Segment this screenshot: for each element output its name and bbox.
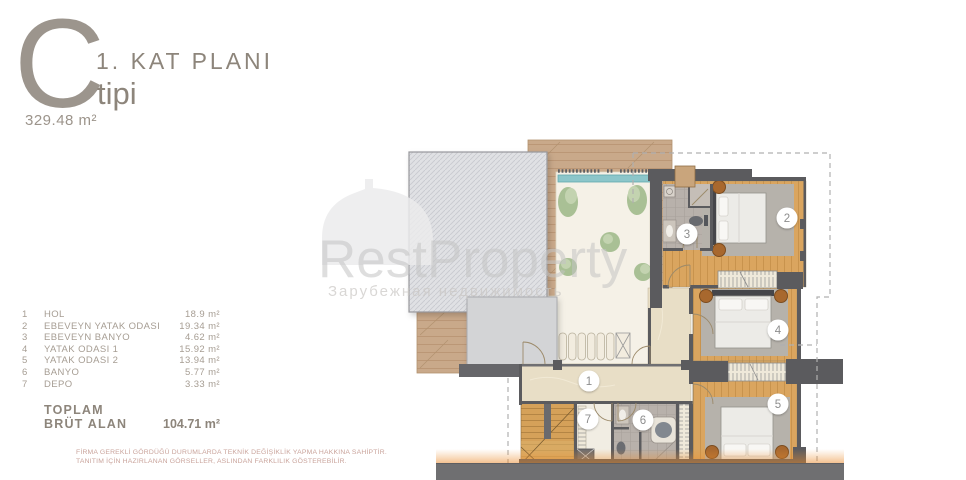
room-name: DEPO — [44, 379, 185, 391]
plan-title: 1. KAT PLANI — [96, 48, 273, 75]
glow — [436, 449, 844, 464]
total-value: 104.71 m² — [163, 417, 220, 431]
plan-type-label: tipi — [97, 76, 137, 112]
floor-hall — [521, 364, 691, 403]
room-number: 5 — [22, 355, 44, 367]
room-name: EBEVEYN BANYO — [44, 332, 185, 344]
room-area: 13.94 m² — [179, 355, 220, 367]
pool — [558, 175, 650, 182]
room-marker: 7 — [578, 409, 599, 430]
bottom-wall-strip — [436, 464, 844, 480]
watermark-brand: RestProperty — [318, 230, 628, 289]
room-name: BANYO — [44, 367, 185, 379]
legend-row: 6 BANYO 5.77 m² — [22, 367, 220, 379]
disclaimer-line1: FİRMA GEREKLİ GÖRDÜĞÜ DURUMLARDA TEKNİK … — [76, 449, 387, 458]
legend-row: 2 EBEVEYN YATAK ODASI 19.34 m² — [22, 321, 220, 333]
room-area: 15.92 m² — [179, 344, 220, 356]
room-marker: 1 — [579, 371, 600, 392]
room-area: 19.34 m² — [179, 321, 220, 333]
legend-row: 7 DEPO 3.33 m² — [22, 379, 220, 391]
nightstand — [775, 290, 788, 303]
room-name: YATAK ODASI 1 — [44, 344, 179, 356]
side-table — [616, 333, 630, 358]
legend-row: 3 EBEVEYN BANYO 4.62 m² — [22, 332, 220, 344]
room-area: 4.62 m² — [185, 332, 220, 344]
svg-text:7: 7 — [585, 414, 591, 426]
page: C 1. KAT PLANI tipi 329.48 m² 1 HOL 18.9… — [0, 0, 966, 480]
room-marker: 6 — [633, 410, 654, 431]
legend-row: 5 YATAK ODASI 2 13.94 m² — [22, 355, 220, 367]
room-marker: 5 — [768, 394, 789, 415]
room-area: 5.77 m² — [185, 367, 220, 379]
total-label-2: BRÜT ALAN — [44, 417, 163, 431]
disclaimer-line2: TANITIM İÇİN HAZIRLANAN GÖRSELLER, ASLIN… — [76, 458, 387, 467]
room-number: 2 — [22, 321, 44, 333]
room-number: 6 — [22, 367, 44, 379]
total-row: TOPLAM BRÜT ALAN 104.71 m² — [22, 403, 220, 431]
room-area: 18.9 m² — [185, 309, 220, 321]
watermark-subtitle: Зарубежная недвижимость — [328, 283, 563, 300]
type-letter: C — [14, 4, 105, 124]
room-number: 3 — [22, 332, 44, 344]
room-marker: 2 — [777, 208, 798, 229]
room-marker: 4 — [768, 320, 789, 341]
svg-text:4: 4 — [775, 325, 782, 337]
legend-row: 4 YATAK ODASI 1 15.92 m² — [22, 344, 220, 356]
nightstand — [700, 290, 713, 303]
room-name: EBEVEYN YATAK ODASI — [44, 321, 179, 333]
room-number: 4 — [22, 344, 44, 356]
room-name: HOL — [44, 309, 185, 321]
nightstand — [713, 181, 726, 194]
svg-text:6: 6 — [640, 415, 646, 427]
nightstand — [713, 244, 726, 257]
room-number: 1 — [22, 309, 44, 321]
total-label-1: TOPLAM — [44, 403, 163, 417]
chimney-column — [675, 166, 695, 187]
room-marker: 3 — [677, 224, 698, 245]
stair-rail — [544, 403, 551, 439]
plan-header: C 1. KAT PLANI tipi 329.48 m² — [0, 0, 320, 140]
svg-text:2: 2 — [784, 213, 790, 225]
disclaimer: FİRMA GEREKLİ GÖRDÜĞÜ DURUMLARDA TEKNİK … — [76, 449, 387, 467]
legend-row: 1 HOL 18.9 m² — [22, 309, 220, 321]
total-area-label: 329.48 m² — [25, 112, 97, 129]
room-legend: 1 HOL 18.9 m² 2 EBEVEYN YATAK ODASI 19.3… — [22, 309, 220, 431]
room-number: 7 — [22, 379, 44, 391]
washer — [664, 186, 675, 197]
room-area: 3.33 m² — [185, 379, 220, 391]
svg-text:1: 1 — [586, 376, 592, 388]
room-name: YATAK ODASI 2 — [44, 355, 179, 367]
svg-text:3: 3 — [684, 229, 690, 241]
svg-text:5: 5 — [775, 399, 781, 411]
